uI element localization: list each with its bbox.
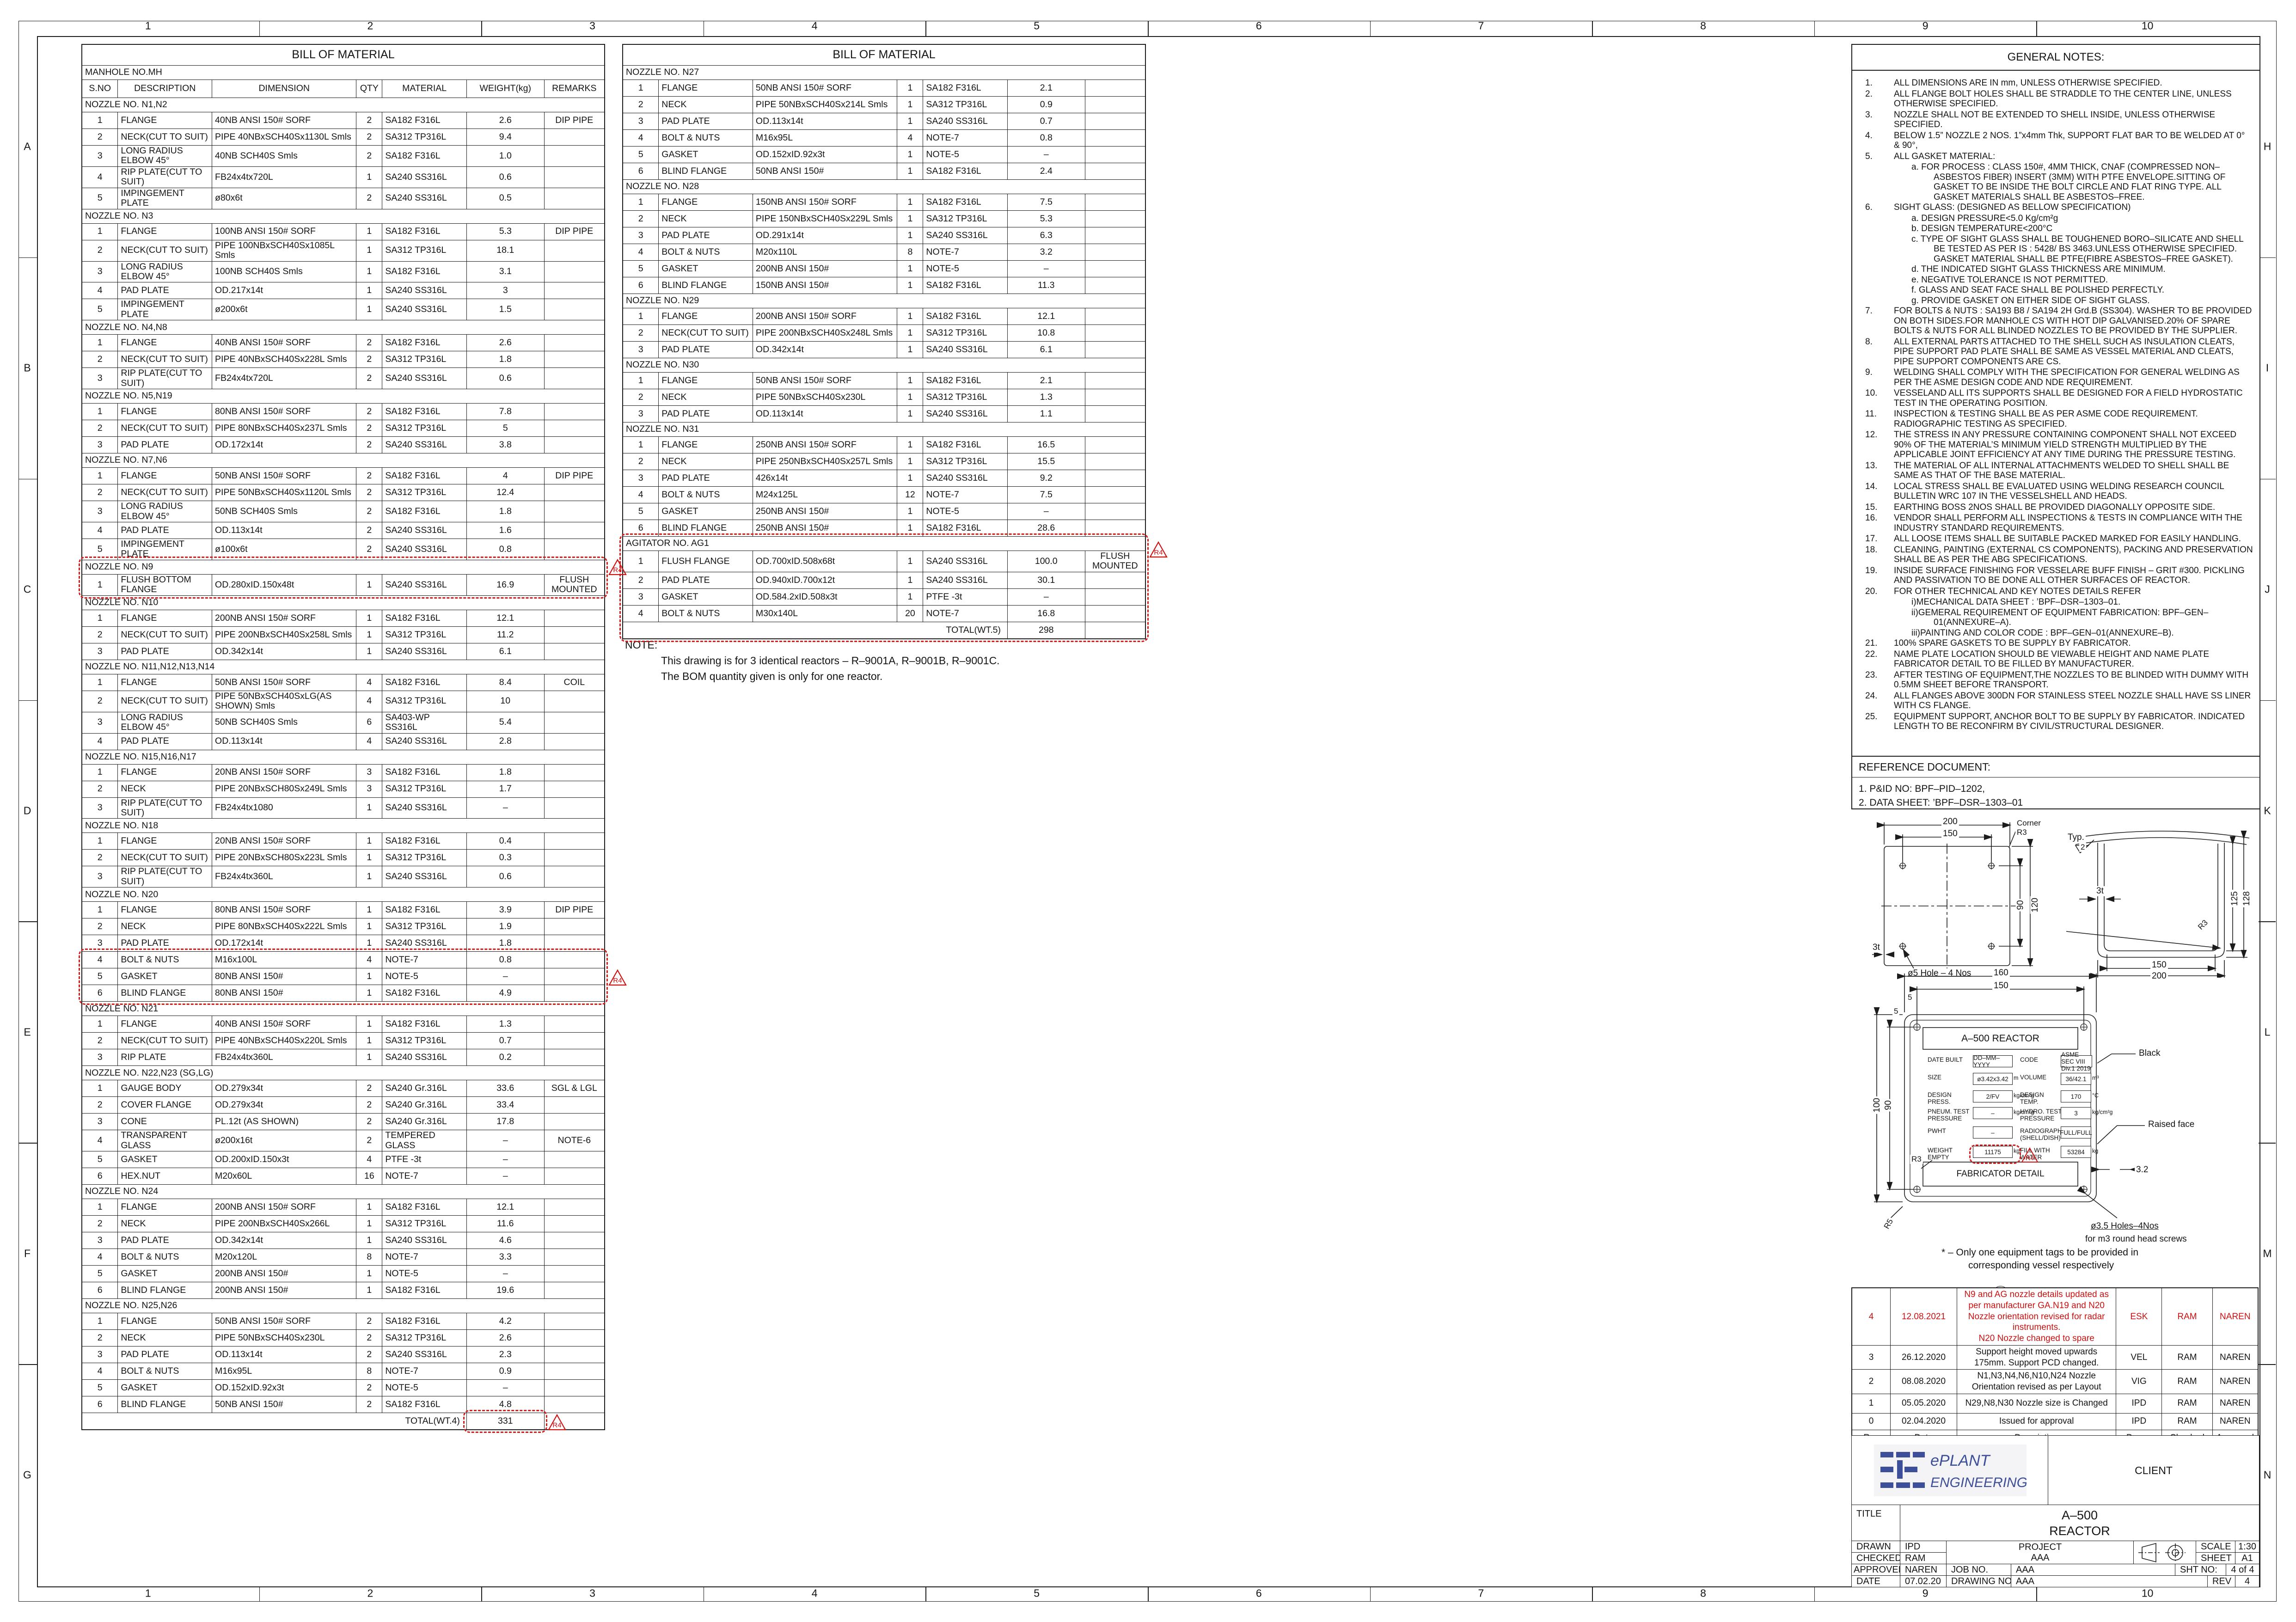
sheet-value: A1: [2235, 1552, 2259, 1565]
bom-cell: 50NB ANSI 150# SORF: [753, 80, 897, 97]
bom-cell: SA312 TP316L: [382, 918, 467, 935]
plate-field-unit: kg: [2014, 1148, 2020, 1154]
bom-cell: 4: [82, 282, 118, 299]
bom-row: 1FLUSH FLANGEOD.700xID.508x68t1SA240 SS3…: [623, 551, 1145, 572]
revision-cell: RAM: [2162, 1345, 2212, 1370]
plate-field-value: 3: [2061, 1107, 2091, 1119]
bom-cell: –: [1007, 588, 1085, 605]
general-note-item: 4.BELOW 1.5” NOZZLE 2 NOS. 1”x4mm Thk, S…: [1856, 131, 2253, 151]
bom-section-header: NOZZLE NO. N24: [82, 1185, 605, 1199]
bom-cell: 2: [356, 1313, 382, 1330]
bom-row: 1FLANGE50NB ANSI 150# SORF1SA182 F316L2.…: [623, 80, 1145, 97]
bom-cell: 6: [82, 1168, 118, 1185]
bom-cell: 0.6: [466, 866, 544, 888]
bom-cell: SA240 SS316L: [382, 539, 467, 560]
bom-section-row: NOZZLE NO. N29: [623, 294, 1145, 308]
bom-cell: 3: [623, 227, 659, 244]
bom-cell: 4: [623, 605, 659, 622]
bom-cell: [544, 1151, 605, 1168]
bom-cell: 2: [356, 1330, 382, 1347]
plate-footnote-1: * – Only one equipment tags to be provid…: [1941, 1247, 2138, 1258]
bom-cell: [1085, 453, 1145, 470]
revision-cell: IPD: [2116, 1394, 2162, 1413]
bom-section-header: NOZZLE NO. N21: [82, 1002, 605, 1016]
bom-section-row: NOZZLE NO. N22,N23 (SG,LG): [82, 1066, 605, 1080]
bom-cell: M24x125L: [753, 487, 897, 503]
general-note-item: 2.ALL FLANGE BOLT HOLES SHALL BE STRADDL…: [1856, 89, 2253, 109]
bom-cell: SA312 TP316L: [382, 420, 467, 437]
bom-cell: SA312 TP316L: [382, 626, 467, 643]
bom-cell: SA182 F316L: [382, 902, 467, 918]
plate-field-value: 36/42.1: [2061, 1073, 2091, 1085]
bom-cell: RIP PLATE(CUT TO SUIT): [118, 166, 212, 188]
bom-cell: 11.3: [1007, 277, 1085, 294]
dim-3t: 3t: [1871, 943, 1881, 953]
bom-cell: 0.4: [466, 833, 544, 850]
revision-row: 326.12.2020Support height moved upwards …: [1852, 1345, 2258, 1370]
bom-cell: SA240 Gr.316L: [382, 1114, 467, 1130]
bom-cell: SA182 F316L: [923, 194, 1008, 211]
bom-section-header: NOZZLE NO. N5,N19: [82, 389, 605, 404]
zone-col-label: 7: [1478, 20, 1484, 32]
bom-cell: [544, 626, 605, 643]
bom-row: 5GASKET250NB ANSI 150#1NOTE-5–: [623, 503, 1145, 520]
bom-cell: [544, 1330, 605, 1347]
bom-cell: SA240 SS316L: [382, 574, 467, 595]
bom-cell: 0.9: [466, 1363, 544, 1380]
bom-cell: LONG RADIUS ELBOW 45°: [118, 501, 212, 522]
plate-holes-note: ø3.5 Holes–4Nos: [2089, 1221, 2160, 1231]
bom-cell: 100.0: [1007, 551, 1085, 572]
bom-cell: 16.8: [1007, 605, 1085, 622]
bom-cell: GAUGE BODY: [118, 1080, 212, 1097]
bom-cell: 9.4: [466, 129, 544, 146]
bom-cell: GASKET: [118, 1266, 212, 1282]
bom-cell: SGL & LGL: [544, 1080, 605, 1097]
bom-row: 3PAD PLATEOD.113x14t1SA240 SS316L0.7: [623, 113, 1145, 130]
bom-cell: 4: [466, 468, 544, 484]
bom-cell: SA240 Gr.316L: [382, 1080, 467, 1097]
bom-cell: 2.1: [1007, 80, 1085, 97]
general-note-subitem: g. PROVIDE GASKET ON EITHER SIDE OF SIGH…: [1911, 296, 2253, 306]
bom-section-row: NOZZLE NO. N31: [623, 422, 1145, 437]
bom-cell: NOTE-5: [382, 1266, 467, 1282]
bom-cell: PTFE -3t: [923, 588, 1008, 605]
bom-cell: ø200x6t: [212, 299, 356, 320]
zone-col-label: 8: [1700, 20, 1706, 32]
bom-cell: FLANGE: [118, 902, 212, 918]
bom-cell: 4: [82, 952, 118, 968]
bom-cell: NECK(CUT TO SUIT): [118, 1033, 212, 1049]
bom-cell: [544, 1363, 605, 1380]
bom-cell: [1085, 97, 1145, 113]
zone-row-label: C: [24, 583, 31, 596]
bom-cell: PIPE 200NBxSCH40Sx258L Smls: [212, 626, 356, 643]
bom-row: 2NECK(CUT TO SUIT)PIPE 80NBxSCH40Sx237L …: [82, 420, 605, 437]
bom-cell: LONG RADIUS ELBOW 45°: [118, 146, 212, 167]
general-note-item: 19.INSIDE SURFACE FINISHING FOR VESSELAR…: [1856, 566, 2253, 586]
bom-cell: SA182 F316L: [382, 146, 467, 167]
bom-cell: NOTE-5: [923, 147, 1008, 163]
bom-cell: FLANGE: [118, 1313, 212, 1330]
plate-footnote-2: corresponding vessel respectively: [1968, 1260, 2114, 1271]
bom-cell: 1: [356, 935, 382, 952]
bom-section-header: NOZZLE NO. N11,N12,N13,N14: [82, 660, 605, 674]
bom-cell: 4.2: [466, 1313, 544, 1330]
reference-item: 2. DATA SHEET: ’BPF–DSR–1303–01: [1859, 796, 2253, 810]
revision-cell: 2: [1852, 1370, 1891, 1394]
bom-row: 1FLANGE40NB ANSI 150# SORF1SA182 F316L1.…: [82, 1016, 605, 1033]
bom-cell: OD.280xID.150x48t: [212, 574, 356, 595]
bom-cell: [544, 1033, 605, 1049]
bom-section-row: NOZZLE NO. N20: [82, 888, 605, 902]
bom-cell: 18.1: [466, 240, 544, 261]
bom-section-row: AGITATOR NO. AG1: [623, 537, 1145, 551]
bom-cell: SA240 SS316L: [382, 299, 467, 320]
bom-cell: 40NB ANSI 150# SORF: [212, 335, 356, 351]
bom-cell: 2.6: [466, 335, 544, 351]
general-note-item: 18.CLEANING, PAINTING (EXTERNAL CS COMPO…: [1856, 545, 2253, 565]
bom-row: 5GASKETOD.152xID.92x3t2NOTE-5–: [82, 1380, 605, 1396]
general-note-subitem: iii)PAINTING AND COLOR CODE : BPF–GEN–01…: [1911, 628, 2253, 638]
bom-cell: [544, 1216, 605, 1232]
bom-cell: 2: [356, 368, 382, 389]
bom-cell: GASKET: [118, 968, 212, 985]
bom-cell: PIPE 50NBxSCH40SxLG(AS SHOWN) Smls: [212, 691, 356, 712]
bom-cell: 2: [82, 918, 118, 935]
bom-cell: [1085, 325, 1145, 342]
drawing-title: A–500 REACTOR: [1900, 1505, 2259, 1542]
bom-cell: NOTE-7: [923, 244, 1008, 261]
bom-cell: [544, 610, 605, 626]
bom-row: 4RIP PLATE(CUT TO SUIT)FB24x4tx720L1SA24…: [82, 166, 605, 188]
plate-field-value: –: [1973, 1107, 2013, 1119]
bom-cell: 12.1: [466, 1199, 544, 1216]
bom-cell: HEX.NUT: [118, 1168, 212, 1185]
bom-row: 5GASKET200NB ANSI 150#1NOTE-5–: [623, 261, 1145, 277]
bom-cell: FLANGE: [659, 437, 753, 453]
bom-cell: SA312 TP316L: [923, 97, 1008, 113]
bom-cell: 1.3: [1007, 389, 1085, 406]
bom-cell: 12.1: [1007, 308, 1085, 325]
bom-cell: 3: [82, 146, 118, 167]
bom-section-header: NOZZLE NO. N1,N2: [82, 98, 605, 112]
dim-150: 150: [1941, 829, 1959, 839]
bom-section-header: NOZZLE NO. N30: [623, 358, 1145, 373]
bom-cell: 4: [356, 674, 382, 691]
bom-cell: 17.8: [466, 1114, 544, 1130]
bom-cell: [544, 539, 605, 560]
bom-cell: 2: [356, 484, 382, 501]
general-note-item: 5.ALL GASKET MATERIAL:: [1856, 152, 2253, 162]
dim-90: 90: [2016, 899, 2026, 911]
dim-128: 128: [2242, 890, 2252, 907]
bom-row: 2NECKPIPE 250NBxSCH40Sx257L Smls1SA312 T…: [623, 453, 1145, 470]
bom-total-row: TOTAL(WT.5)298: [623, 622, 1145, 639]
plate-dim-3-2: 3.2: [2135, 1165, 2149, 1175]
bom-cell: [544, 764, 605, 781]
bom-cell: 1: [897, 113, 923, 130]
bom-cell: 2: [356, 351, 382, 368]
bom-cell: 4: [82, 1130, 118, 1151]
bom-row: 4TRANSPARENT GLASSø200x16t2TEMPERED GLAS…: [82, 1130, 605, 1151]
bom-cell: 1.1: [1007, 406, 1085, 422]
bom-cell: 3: [82, 368, 118, 389]
bom-cell: 1: [82, 1199, 118, 1216]
bom-cell: [544, 833, 605, 850]
bom-cell: 1: [897, 261, 923, 277]
bom-cell: 1: [623, 437, 659, 453]
bom-cell: 1: [356, 1232, 382, 1249]
bom-cell: 1: [82, 674, 118, 691]
bom-cell: 8: [356, 1249, 382, 1266]
bom-cell: QTY: [356, 80, 382, 98]
bom-cell: 1: [356, 1266, 382, 1282]
bom-cell: BOLT & NUTS: [659, 130, 753, 147]
bom-cell: 5: [82, 299, 118, 320]
bom-cell: 0.2: [466, 1049, 544, 1066]
bom-cell: [544, 1313, 605, 1330]
bom-cell: BLIND FLANGE: [118, 1396, 212, 1413]
bom-cell: NECK: [659, 453, 753, 470]
job-value: AAA: [2011, 1564, 2185, 1576]
bom-cell: 3: [466, 282, 544, 299]
bom-cell: BOLT & NUTS: [118, 1249, 212, 1266]
bom-cell: 3: [356, 781, 382, 797]
bom-cell: 5.4: [466, 712, 544, 733]
zone-col-label: 2: [367, 1587, 373, 1600]
bom-cell: 20NB ANSI 150# SORF: [212, 764, 356, 781]
bom-section-row: NOZZLE NO. N15,N16,N17: [82, 750, 605, 764]
bom-section-row: NOZZLE NO. N9: [82, 560, 605, 574]
bom-cell: 3: [82, 1347, 118, 1363]
revision-cell: RAM: [2162, 1394, 2212, 1413]
bom-cell: [544, 1049, 605, 1066]
bom-cell: 4.6: [466, 1232, 544, 1249]
bom-cell: [1085, 113, 1145, 130]
bom-cell: PIPE 80NBxSCH40Sx222L Smls: [212, 918, 356, 935]
bom-row: 3PAD PLATEOD.342x14t1SA240 SS316L6.1: [82, 643, 605, 660]
bom-section-row: NOZZLE NO. N30: [623, 358, 1145, 373]
bom-cell: 0.9: [1007, 97, 1085, 113]
sht-value: 4 of 4: [2226, 1564, 2259, 1576]
bom-cell: 4: [356, 733, 382, 750]
bom-cell: [544, 1413, 605, 1430]
project-label: PROJECT: [2019, 1542, 2062, 1553]
plate-dim-5-top: 5: [1906, 993, 1913, 1002]
bom-cell: 4: [356, 952, 382, 968]
bom-section-row: NOZZLE NO. N18: [82, 819, 605, 833]
zone-row-label: F: [24, 1247, 31, 1260]
bom-cell: SA312 TP316L: [382, 240, 467, 261]
bom-note-line1: This drawing is for 3 identical reactors…: [625, 653, 1133, 668]
bom-cell: 2: [356, 129, 382, 146]
bom-cell: OD.342x14t: [212, 1232, 356, 1249]
bom-cell: 1: [897, 572, 923, 588]
bom-cell: OD.200xID.150x3t: [212, 1151, 356, 1168]
bom-cell: [544, 188, 605, 209]
bom-cell: [1085, 503, 1145, 520]
bom-cell: 1: [356, 866, 382, 888]
plate-field-value: 170: [2061, 1090, 2091, 1102]
revision-cell: 12.08.2021: [1891, 1288, 1957, 1345]
bom-cell: NOTE-7: [923, 130, 1008, 147]
bom-row: 3LONG RADIUS ELBOW 45°40NB SCH40S Smls2S…: [82, 146, 605, 167]
bom-section-row: NOZZLE NO. N25,N26: [82, 1299, 605, 1313]
bom-row: 2NECKPIPE 80NBxSCH40Sx222L Smls1SA312 TP…: [82, 918, 605, 935]
revision-cell: IPD: [2116, 1413, 2162, 1430]
bom-cell: FLUSH BOTTOM FLANGE: [118, 574, 212, 595]
bom-cell: OD.113x14t: [212, 733, 356, 750]
bom-row: 3CONEPL.12t (AS SHOWN)2SA240 Gr.316L17.8: [82, 1114, 605, 1130]
bom-cell: 1: [356, 1199, 382, 1216]
bom-cell: [544, 484, 605, 501]
bom-cell: 1: [82, 404, 118, 420]
bom-cell: 3: [82, 1049, 118, 1066]
bom-cell: 16.5: [1007, 437, 1085, 453]
bom-cell: 250NB ANSI 150#: [753, 520, 897, 537]
bom-row: 1FLANGE20NB ANSI 150# SORF1SA182 F316L0.…: [82, 833, 605, 850]
plate-title: A–500 REACTOR: [1923, 1028, 2078, 1049]
bom-title: BILL OF MATERIAL: [623, 44, 1145, 66]
bom-cell: 2: [623, 389, 659, 406]
bom-section-header: NOZZLE NO. N25,N26: [82, 1299, 605, 1313]
bom-cell: FLANGE: [118, 610, 212, 626]
bom-cell: NOTE-7: [382, 1249, 467, 1266]
plate-radius-r3: R3: [1910, 1155, 1923, 1164]
bom-cell: NECK(CUT TO SUIT): [118, 484, 212, 501]
bom-cell: 11.6: [466, 1216, 544, 1232]
bom-cell: SA240 SS316L: [382, 935, 467, 952]
bom-cell: FLANGE: [118, 468, 212, 484]
general-note-item: 10.VESSELAND ALL ITS SUPPORTS SHALL BE D…: [1856, 388, 2253, 408]
bom-cell: SA182 F316L: [923, 308, 1008, 325]
bom-row: 6BLIND FLANGE50NB ANSI 150#2SA182 F316L4…: [82, 1396, 605, 1413]
bom-cell: OD.113x14t: [212, 1347, 356, 1363]
bom-section-header: NOZZLE NO. N20: [82, 888, 605, 902]
bom-cell: [544, 968, 605, 985]
bom-cell: [1085, 487, 1145, 503]
bom-row: 1FLANGE40NB ANSI 150# SORF2SA182 F316L2.…: [82, 335, 605, 351]
bom-cell: SA312 TP316L: [382, 1330, 467, 1347]
bom-cell: 250NB ANSI 150# SORF: [753, 437, 897, 453]
bom-row: 1FLANGE20NB ANSI 150# SORF3SA182 F316L1.…: [82, 764, 605, 781]
bom-cell: SA182 F316L: [382, 1313, 467, 1330]
plate-field-label: VOLUME: [2020, 1074, 2063, 1081]
bom-cell: SA182 F316L: [923, 277, 1008, 294]
bom-cell: 2: [356, 112, 382, 129]
bom-cell: 0.8: [1007, 130, 1085, 147]
bom-cell: 40NB SCH40S Smls: [212, 146, 356, 167]
general-note-item: 11.INSPECTION & TESTING SHALL BE AS PER …: [1856, 409, 2253, 429]
bom-cell: SA182 F316L: [382, 223, 467, 240]
bom-cell: [1085, 163, 1145, 180]
bom-cell: 50NB ANSI 150#: [212, 1396, 356, 1413]
bom-cell: [1085, 389, 1145, 406]
bom-cell: GASKET: [659, 147, 753, 163]
bom-cell: SA312 TP316L: [382, 691, 467, 712]
bom-row: 2NECKPIPE 150NBxSCH40Sx229L Smls1SA312 T…: [623, 211, 1145, 227]
plate-fabricator: FABRICATOR DETAIL: [1923, 1162, 2078, 1186]
approved-label: APPROVED: [1851, 1564, 1904, 1576]
bom-cell: 150NB ANSI 150#: [753, 277, 897, 294]
reference-item: 1. P&ID NO: BPF–PID–1202,: [1859, 782, 2253, 796]
zone-col-label: 10: [2142, 20, 2154, 32]
bom-cell: 4: [356, 691, 382, 712]
bom-cell: 2: [356, 146, 382, 167]
bom-cell: 1: [897, 453, 923, 470]
bom-cell: 80NB ANSI 150#: [212, 985, 356, 1002]
bom-cell: 12.4: [466, 484, 544, 501]
plate-field-unit: m³: [2092, 1075, 2099, 1081]
bom-row: 5GASKET80NB ANSI 150#1NOTE-5–: [82, 968, 605, 985]
bom-cell: 1: [356, 918, 382, 935]
bom-cell: 40NB ANSI 150# SORF: [212, 1016, 356, 1033]
revision-cell: Support height moved upwards 175mm. Supp…: [1957, 1345, 2116, 1370]
bom-cell: 4: [82, 1363, 118, 1380]
bom-cell: 4: [82, 733, 118, 750]
bom-cell: 1: [897, 342, 923, 358]
bom-cell: PAD PLATE: [659, 470, 753, 487]
bom-cell: M16x95L: [753, 130, 897, 147]
bom-cell: 1: [623, 80, 659, 97]
bom-cell: NECK: [118, 1330, 212, 1347]
plate-field-label: HYDRO. TEST PRESSURE: [2020, 1108, 2063, 1122]
bom-cell: SA240 SS316L: [923, 572, 1008, 588]
bom-cell: [1085, 520, 1145, 537]
zone-col-label: 6: [1256, 1587, 1262, 1600]
bom-cell: 0.6: [466, 166, 544, 188]
bom-cell: SA182 F316L: [382, 335, 467, 351]
bom-cell: BLIND FLANGE: [659, 163, 753, 180]
bom-cell: 6.1: [466, 643, 544, 660]
bom-column-header: S.NODESCRIPTIONDIMENSIONQTYMATERIALWEIGH…: [82, 80, 605, 98]
bom-cell: 1: [356, 850, 382, 866]
bom-cell: [544, 1097, 605, 1114]
revision-cell: 02.04.2020: [1891, 1413, 1957, 1430]
bom-cell: 50NB SCH40S Smls: [212, 712, 356, 733]
bom-total-label: TOTAL(WT.5): [623, 622, 1007, 639]
bom-cell: 1: [356, 1033, 382, 1049]
zone-col-label: 8: [1700, 1587, 1706, 1600]
revision-cell: VIG: [2116, 1370, 2162, 1394]
bom-cell: 8: [897, 244, 923, 261]
bom-cell: 2: [82, 420, 118, 437]
bom-cell: SA182 F316L: [382, 1396, 467, 1413]
bom-row: 1FLANGE80NB ANSI 150# SORF2SA182 F316L7.…: [82, 404, 605, 420]
bom-cell: 2: [356, 1130, 382, 1151]
bom-cell: 2.4: [1007, 163, 1085, 180]
revision-cell: 3: [1852, 1345, 1891, 1370]
bom-cell: 50NB ANSI 150# SORF: [212, 1313, 356, 1330]
bom-cell: 5: [82, 968, 118, 985]
zone-row-label: A: [24, 141, 31, 153]
bom-cell: 2.1: [1007, 373, 1085, 389]
bom-cell: NOTE-5: [923, 503, 1008, 520]
bom-cell: 12: [897, 487, 923, 503]
bom-cell: 10.8: [1007, 325, 1085, 342]
bom-cell: M20x120L: [212, 1249, 356, 1266]
bom-cell: DIMENSION: [212, 80, 356, 98]
bom-cell: 7.5: [1007, 194, 1085, 211]
revision-cell: NAREN: [2212, 1288, 2258, 1345]
bom-cell: 2: [623, 97, 659, 113]
bom-cell: PIPE 200NBxSCH40Sx266L: [212, 1216, 356, 1232]
bom-cell: OD.342x14t: [753, 342, 897, 358]
bom-cell: 1: [356, 240, 382, 261]
bom-cell: SA240 SS316L: [382, 368, 467, 389]
bom-cell: [544, 261, 605, 282]
